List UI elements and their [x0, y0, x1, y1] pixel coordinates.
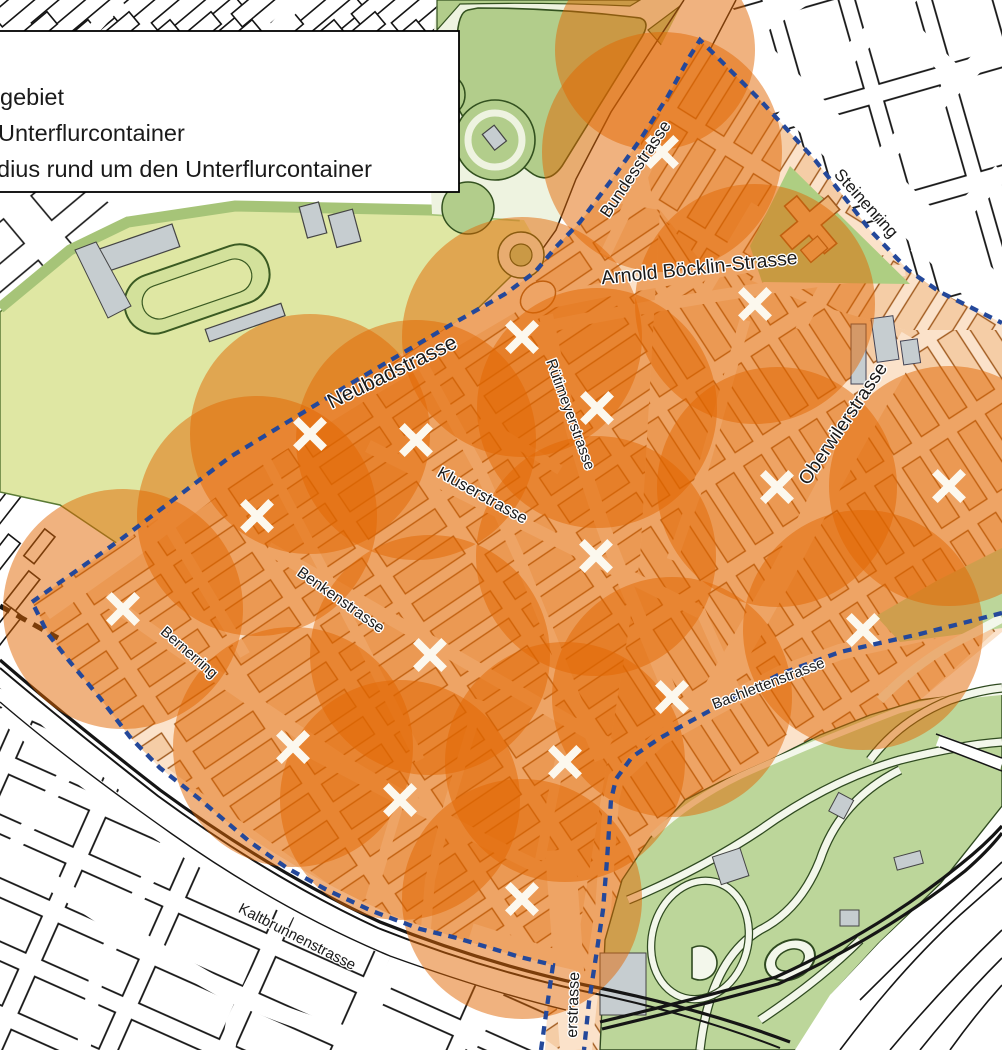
svg-text:dius rund um den Unterflurcont: dius rund um den Unterflurcontainer [0, 156, 372, 182]
svg-text:gebiet: gebiet [0, 84, 64, 110]
svg-text:Unterflurcontainer: Unterflurcontainer [0, 120, 185, 146]
svg-text:erstrasse: erstrasse [564, 972, 583, 1038]
